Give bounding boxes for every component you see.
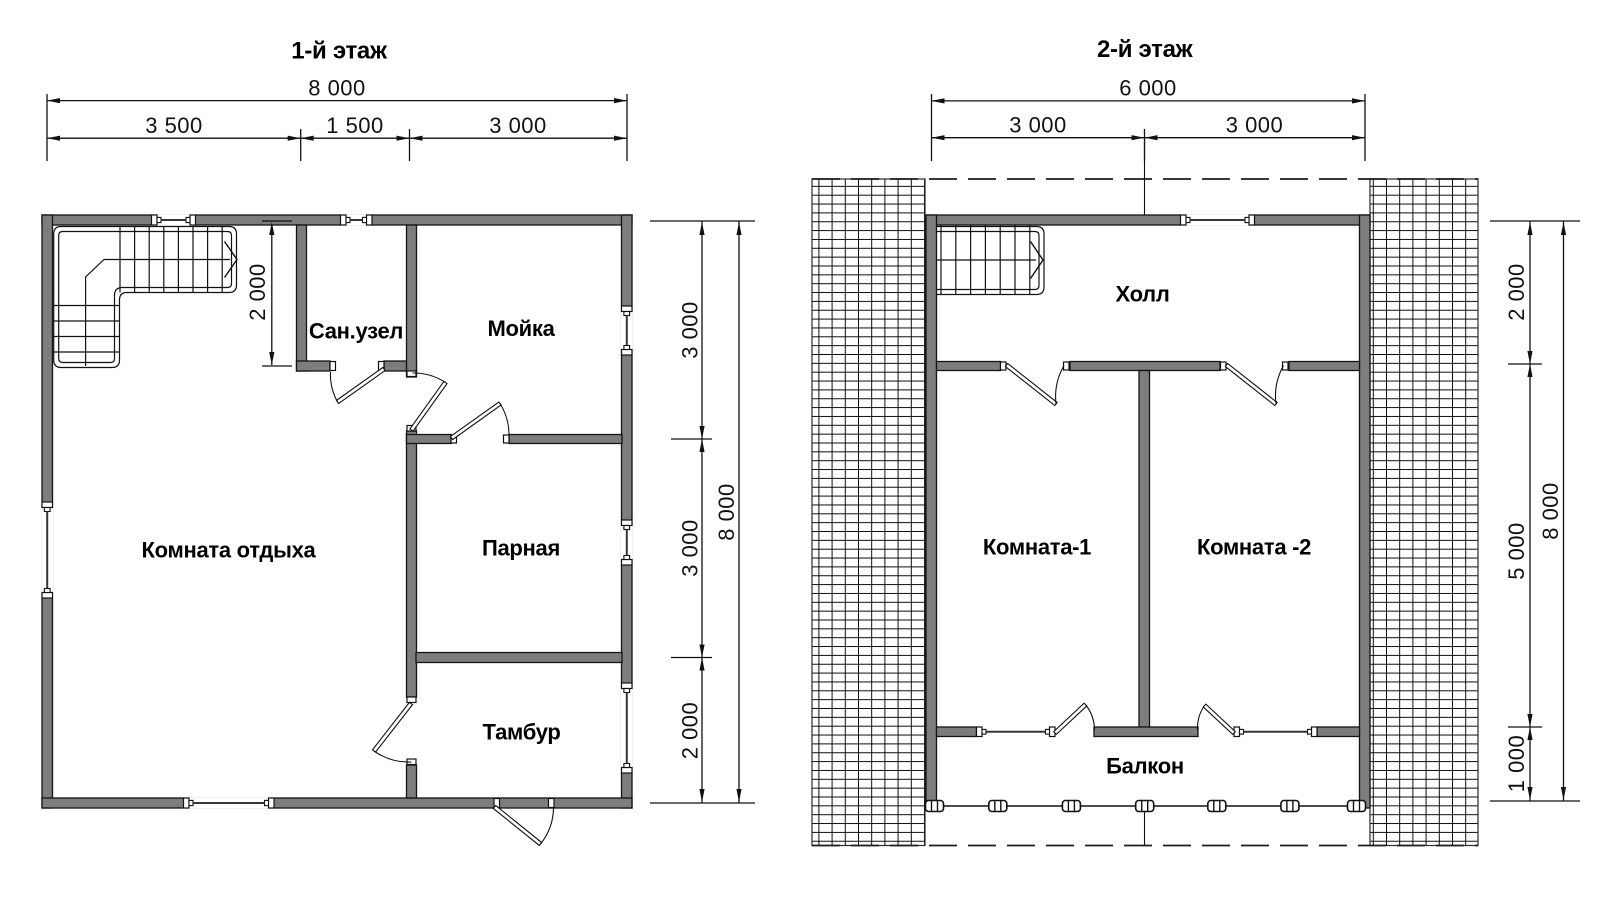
svg-text:3 000: 3 000 [1009, 113, 1067, 138]
svg-text:3 000: 3 000 [678, 519, 703, 577]
svg-text:Комната-1: Комната-1 [983, 535, 1091, 560]
svg-text:Мойка: Мойка [487, 316, 555, 341]
svg-text:Комната отдыха: Комната отдыха [142, 538, 317, 563]
svg-text:3 000: 3 000 [1226, 113, 1284, 138]
svg-text:Парная: Парная [482, 536, 560, 561]
svg-text:1 500: 1 500 [326, 113, 384, 138]
svg-text:1-й этаж: 1-й этаж [291, 38, 388, 65]
svg-text:8 000: 8 000 [1538, 482, 1563, 540]
svg-text:Холл: Холл [1115, 282, 1169, 307]
svg-text:2 000: 2 000 [678, 702, 703, 760]
svg-text:2-й этаж: 2-й этаж [1097, 36, 1194, 63]
svg-text:1 000: 1 000 [1504, 735, 1529, 793]
svg-text:Сан.узел: Сан.узел [309, 319, 403, 344]
svg-text:2 000: 2 000 [245, 263, 270, 321]
svg-text:8 000: 8 000 [308, 76, 366, 101]
svg-text:Тамбур: Тамбур [483, 720, 561, 745]
svg-text:6 000: 6 000 [1119, 76, 1177, 101]
svg-text:8 000: 8 000 [714, 483, 739, 541]
svg-text:3 500: 3 500 [145, 113, 203, 138]
svg-text:Балкон: Балкон [1106, 754, 1184, 779]
svg-text:2 000: 2 000 [1504, 263, 1529, 321]
svg-text:3 000: 3 000 [489, 113, 547, 138]
svg-text:5 000: 5 000 [1504, 522, 1529, 580]
svg-text:3 000: 3 000 [678, 301, 703, 359]
svg-text:Комната -2: Комната -2 [1197, 535, 1311, 560]
